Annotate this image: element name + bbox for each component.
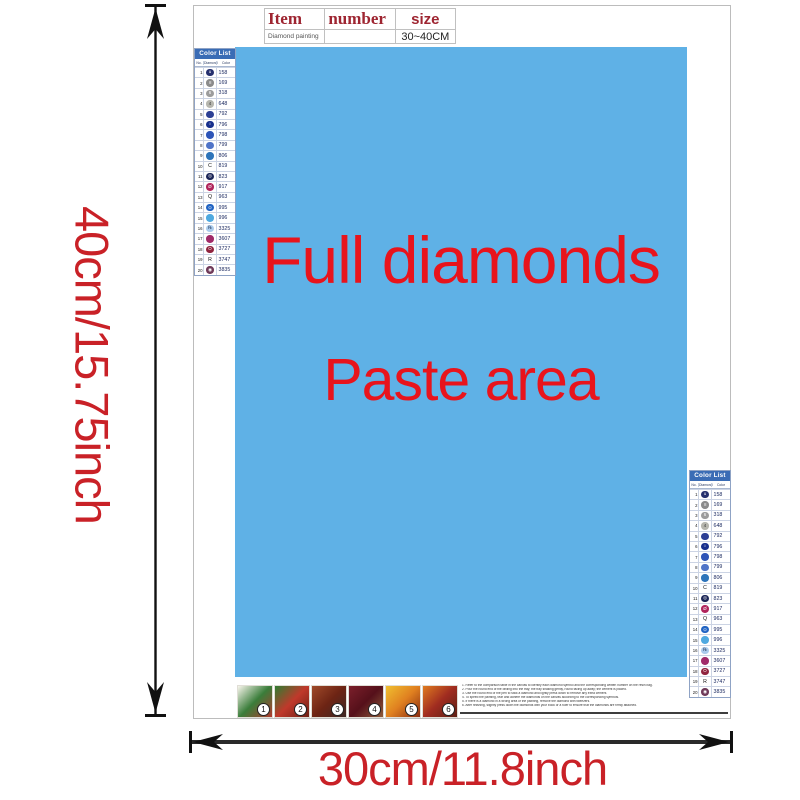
diamond-color-dot: [206, 111, 213, 118]
color-row-number: 15: [690, 638, 698, 643]
diamond-color-dot: ≡: [206, 79, 213, 86]
color-list-row: 6○796: [690, 541, 730, 551]
color-row-number: 11: [690, 596, 698, 601]
color-row-number: 12: [195, 184, 203, 189]
color-row-number: 5: [690, 534, 698, 539]
color-row-number: 13: [690, 617, 698, 622]
paste-area-title-line2: Paste area: [235, 350, 687, 412]
diamond-symbol-letter: C: [703, 585, 707, 591]
color-row-number: 15: [195, 216, 203, 221]
diamond-color-dot: ○: [206, 121, 213, 128]
color-row-number: 17: [195, 236, 203, 241]
color-list-row: 6○796: [195, 119, 235, 129]
color-list-row: 13Q963: [690, 614, 730, 624]
diamond-symbol: [203, 234, 216, 243]
color-row-number: 17: [690, 658, 698, 663]
diamond-symbol: ◎: [698, 594, 711, 603]
dmc-color-code: 3325: [711, 646, 730, 655]
step-thumbnail: 2: [274, 685, 310, 718]
dmc-color-code: 917: [216, 182, 235, 191]
color-row-number: 8: [195, 143, 203, 148]
color-row-number: 4: [195, 101, 203, 106]
color-list-right: Color ListNo.DiamondColor1u1582≡16936318…: [689, 470, 731, 698]
color-list-row: 15996: [195, 212, 235, 222]
diamond-symbol: C: [698, 584, 711, 593]
diamond-symbol: Q: [203, 193, 216, 202]
diamond-symbol: ⊙: [203, 203, 216, 212]
dmc-color-code: 823: [711, 594, 730, 603]
diamond-symbol: ≡: [698, 500, 711, 509]
color-row-number: 11: [195, 174, 203, 179]
step-number-badge: 3: [331, 703, 344, 716]
diamond-symbol-letter: Q: [208, 194, 212, 200]
instructions-block: 1. Refer to the comparison table in the …: [462, 684, 718, 707]
dmc-color-code: 799: [216, 141, 235, 150]
item-label: Item: [265, 9, 325, 30]
diamond-color-dot: O: [206, 246, 213, 253]
diamond-symbol: [698, 563, 711, 572]
step-thumbnail: 1: [237, 685, 273, 718]
product-name: Diamond painting: [265, 30, 325, 44]
color-row-number: 4: [690, 523, 698, 528]
diamond-symbol: O: [203, 245, 216, 254]
color-row-number: 6: [690, 544, 698, 549]
diamond-symbol: ℞: [698, 646, 711, 655]
dmc-color-code: 996: [216, 213, 235, 222]
dmc-color-code: 3835: [216, 265, 235, 274]
diamond-symbol: [203, 213, 216, 222]
color-list-row: 9806: [195, 150, 235, 160]
diamond-color-dot: ◎: [206, 173, 213, 180]
diamond-symbol: ○: [698, 542, 711, 551]
dmc-color-code: 823: [216, 172, 235, 181]
dmc-color-code: 796: [711, 542, 730, 551]
color-list-column-label: Diamond: [698, 483, 711, 487]
diamond-color-dot: 4: [701, 522, 708, 529]
diamond-color-dot: ℞: [701, 647, 708, 654]
color-list-row: 173607: [195, 233, 235, 243]
dmc-color-code: 917: [711, 604, 730, 613]
diamond-symbol: R: [203, 255, 216, 264]
diamond-color-dot: [206, 142, 213, 149]
diamond-color-dot: [701, 657, 708, 664]
color-list-title: Color List: [195, 49, 235, 59]
color-row-number: 3: [195, 91, 203, 96]
color-list-row: 36318: [195, 88, 235, 98]
color-list-row: 8799: [690, 562, 730, 572]
step-number-badge: 2: [294, 703, 307, 716]
dmc-color-code: 792: [216, 110, 235, 119]
color-row-number: 13: [195, 195, 203, 200]
color-row-number: 1: [690, 492, 698, 497]
number-label: number: [325, 9, 395, 30]
color-list-row: 13Q963: [195, 192, 235, 202]
color-list-header: No.DiamondColor: [690, 481, 730, 489]
dmc-color-code: 792: [711, 532, 730, 541]
diamond-color-dot: 6: [206, 90, 213, 97]
color-list-left: Color ListNo.DiamondColor1u1582≡16936318…: [194, 48, 236, 276]
diamond-color-dot: u: [701, 491, 708, 498]
diamond-symbol: [698, 552, 711, 561]
instruction-line: 6. After finishing, slightly press down …: [462, 704, 718, 708]
color-list-row: 15996: [690, 634, 730, 644]
color-row-number: 9: [690, 575, 698, 580]
diamond-color-dot: ◉: [206, 266, 213, 273]
dmc-color-code: 798: [216, 130, 235, 139]
diamond-color-dot: ⊙: [206, 204, 213, 211]
color-list-row: 173607: [690, 655, 730, 665]
diamond-symbol: u: [203, 68, 216, 77]
color-row-number: 18: [690, 669, 698, 674]
color-row-number: 2: [690, 503, 698, 508]
color-list-row: 10C819: [690, 583, 730, 593]
color-list-row: 12Ø917: [690, 603, 730, 613]
dmc-color-code: 3727: [711, 667, 730, 676]
diamond-color-dot: ⊙: [701, 626, 708, 633]
dmc-color-code: 648: [216, 99, 235, 108]
diamond-symbol: 6: [203, 89, 216, 98]
diamond-color-dot: u: [206, 69, 213, 76]
color-list-row: 10C819: [195, 161, 235, 171]
color-list-row: 44648: [195, 98, 235, 108]
dmc-color-code: 819: [711, 584, 730, 593]
dmc-color-code: 318: [216, 89, 235, 98]
diamond-color-dot: ≡: [701, 501, 708, 508]
item-size-table: Item number size Diamond painting 30~40C…: [264, 8, 456, 44]
color-list-row: 18O3727: [195, 244, 235, 254]
diamond-symbol: Ø: [698, 604, 711, 613]
color-list-column-label: Diamond: [203, 61, 216, 65]
diamond-color-dot: [206, 214, 213, 221]
step-thumbnail: 5: [385, 685, 421, 718]
dmc-color-code: 819: [216, 162, 235, 171]
color-row-number: 20: [195, 268, 203, 273]
height-dimension-label: 40cm/15.75inch: [52, 190, 132, 540]
paste-area-title-line1: Full diamonds: [235, 226, 687, 295]
color-list-column-label: No.: [195, 61, 203, 65]
color-list-row: 19R3747: [195, 254, 235, 264]
diamond-color-dot: [206, 152, 213, 159]
step-thumbnails: 123456: [237, 685, 458, 718]
diamond-symbol: [203, 141, 216, 150]
color-row-number: 16: [195, 226, 203, 231]
step-number-badge: 5: [405, 703, 418, 716]
diamond-color-dot: Ø: [701, 605, 708, 612]
diamond-symbol: [698, 573, 711, 582]
color-list-row: 36318: [690, 510, 730, 520]
dmc-color-code: 158: [216, 68, 235, 77]
color-row-number: 5: [195, 112, 203, 117]
diamond-symbol: ≡: [203, 78, 216, 87]
color-row-number: 1: [195, 70, 203, 75]
color-list-row: 12Ø917: [195, 181, 235, 191]
color-row-number: 9: [195, 153, 203, 158]
diamond-symbol: u: [698, 490, 711, 499]
diamond-symbol: Q: [698, 615, 711, 624]
color-list-row: 5792: [690, 531, 730, 541]
step-number-badge: 6: [442, 703, 455, 716]
color-list-row: 2≡169: [690, 499, 730, 509]
color-list-row: 7798: [195, 129, 235, 139]
dmc-color-code: 318: [711, 511, 730, 520]
dmc-color-code: 3727: [216, 245, 235, 254]
diamond-symbol: C: [203, 162, 216, 171]
diamond-color-dot: [701, 564, 708, 571]
color-list-row: 7798: [690, 551, 730, 561]
vertical-measure-arrow: [142, 1, 170, 723]
diamond-color-dot: Ø: [206, 183, 213, 190]
dmc-color-code: 798: [711, 552, 730, 561]
color-row-number: 8: [690, 565, 698, 570]
dmc-color-code: 963: [711, 615, 730, 624]
diamond-color-dot: ℞: [206, 225, 213, 232]
color-list-row: 14⊙995: [690, 624, 730, 634]
color-list-row: 1u158: [195, 67, 235, 77]
color-row-number: 16: [690, 648, 698, 653]
diamond-color-dot: ○: [701, 543, 708, 550]
color-row-number: 12: [690, 606, 698, 611]
dmc-color-code: 995: [216, 203, 235, 212]
diamond-symbol: [203, 130, 216, 139]
dmc-color-code: 963: [216, 193, 235, 202]
diamond-symbol: O: [698, 667, 711, 676]
color-row-number: 10: [690, 586, 698, 591]
diamond-symbol: ⊙: [698, 625, 711, 634]
diamond-symbol: ○: [203, 120, 216, 129]
color-list-row: 5792: [195, 109, 235, 119]
color-list-column-label: Color: [216, 61, 235, 65]
step-thumbnail: 3: [311, 685, 347, 718]
color-row-number: 7: [195, 133, 203, 138]
color-row-number: 10: [195, 164, 203, 169]
diamond-color-dot: [701, 636, 708, 643]
step-number-badge: 1: [257, 703, 270, 716]
diamond-symbol-letter: C: [208, 163, 212, 169]
dmc-color-code: 3607: [711, 656, 730, 665]
dmc-color-code: 806: [216, 151, 235, 160]
diamond-color-dot: [701, 533, 708, 540]
diamond-symbol: [203, 151, 216, 160]
color-list-row: 11◎823: [690, 593, 730, 603]
diamond-symbol-letter: Q: [703, 616, 707, 622]
dmc-color-code: 3325: [216, 224, 235, 233]
dmc-color-code: 648: [711, 521, 730, 530]
color-row-number: 14: [195, 205, 203, 210]
item-number-cell: [325, 30, 395, 44]
diamond-symbol: ◉: [203, 265, 216, 274]
dmc-color-code: 996: [711, 635, 730, 644]
step-number-badge: 4: [368, 703, 381, 716]
step-thumbnail: 6: [422, 685, 458, 718]
dmc-color-code: 169: [216, 78, 235, 87]
color-list-column-label: No.: [690, 483, 698, 487]
color-row-number: 6: [195, 122, 203, 127]
color-list-row: 14⊙995: [195, 202, 235, 212]
color-row-number: 14: [690, 627, 698, 632]
diamond-symbol: [203, 110, 216, 119]
color-list-row: 18O3727: [690, 666, 730, 676]
dmc-color-code: 995: [711, 625, 730, 634]
dmc-color-code: 799: [711, 563, 730, 572]
width-dimension-label: 30cm/11.8inch: [190, 744, 735, 793]
diamond-symbol: ℞: [203, 224, 216, 233]
diamond-color-dot: ◎: [701, 595, 708, 602]
diamond-symbol: 4: [698, 521, 711, 530]
size-value: 30~40CM: [395, 30, 455, 44]
dmc-color-code: 796: [216, 120, 235, 129]
color-row-number: 2: [195, 81, 203, 86]
size-label: size: [395, 9, 455, 30]
diamond-symbol: [698, 532, 711, 541]
diamond-symbol: 4: [203, 99, 216, 108]
diamond-symbol-letter: R: [208, 257, 212, 263]
color-list-row: 44648: [690, 520, 730, 530]
diamond-color-dot: [701, 574, 708, 581]
step-thumbnail: 4: [348, 685, 384, 718]
color-row-number: 19: [195, 257, 203, 262]
diamond-symbol: Ø: [203, 182, 216, 191]
diamond-symbol: ◎: [203, 172, 216, 181]
color-list-row: 20◉3835: [195, 264, 235, 274]
dmc-color-code: 3747: [216, 255, 235, 264]
dmc-color-code: 806: [711, 573, 730, 582]
color-list-row: 1u158: [690, 489, 730, 499]
instructions-underline: [460, 712, 728, 714]
diamond-symbol: [698, 656, 711, 665]
color-list-row: 2≡169: [195, 77, 235, 87]
diamond-color-dot: O: [701, 668, 708, 675]
diamond-color-dot: 6: [701, 512, 708, 519]
dmc-color-code: 158: [711, 490, 730, 499]
diamond-color-dot: 4: [206, 100, 213, 107]
color-list-row: 16℞3325: [195, 223, 235, 233]
color-list-header: No.DiamondColor: [195, 59, 235, 67]
color-row-number: 18: [195, 247, 203, 252]
color-list-row: 11◎823: [195, 171, 235, 181]
color-list-column-label: Color: [711, 483, 730, 487]
diamond-symbol: [698, 635, 711, 644]
diamond-color-dot: [701, 553, 708, 560]
dmc-color-code: 3607: [216, 234, 235, 243]
color-row-number: 3: [690, 513, 698, 518]
diamond-color-dot: [206, 235, 213, 242]
color-list-title: Color List: [690, 471, 730, 481]
color-list-row: 16℞3325: [690, 645, 730, 655]
dmc-color-code: 169: [711, 500, 730, 509]
color-row-number: 7: [690, 555, 698, 560]
diamond-symbol: 6: [698, 511, 711, 520]
diamond-color-dot: [206, 131, 213, 138]
color-list-row: 9806: [690, 572, 730, 582]
color-list-row: 8799: [195, 140, 235, 150]
